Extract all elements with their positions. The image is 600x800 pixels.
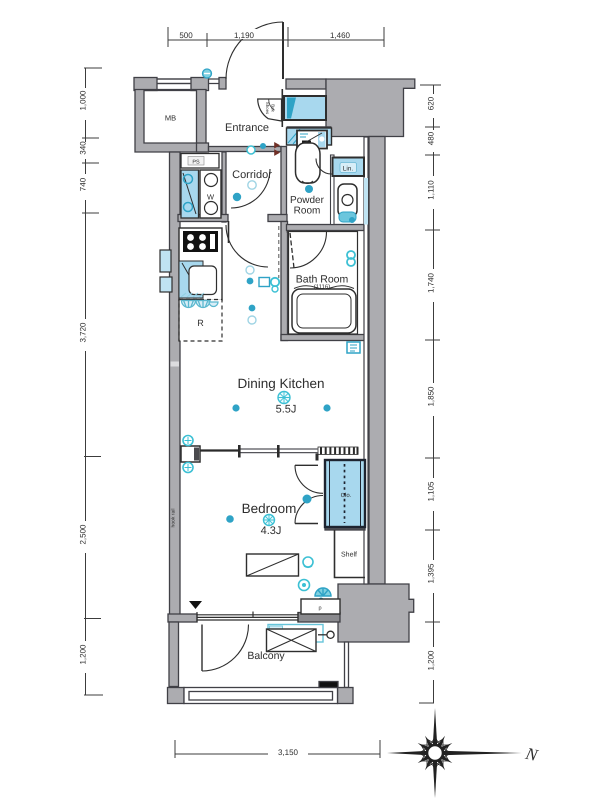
svg-text:Dining Kitchen: Dining Kitchen	[237, 376, 324, 391]
svg-text:Powder: Powder	[290, 195, 325, 206]
svg-text:Room: Room	[294, 206, 321, 217]
svg-text:1,200: 1,200	[79, 644, 88, 665]
svg-text:1,395: 1,395	[427, 563, 436, 584]
svg-text:5.5J: 5.5J	[276, 404, 297, 416]
svg-text:Bedroom: Bedroom	[242, 501, 297, 516]
svg-text:Shelf: Shelf	[341, 551, 357, 559]
svg-text:1,850: 1,850	[427, 386, 436, 407]
svg-text:500: 500	[179, 31, 193, 40]
svg-text:(1116): (1116)	[314, 284, 330, 291]
svg-text:740: 740	[79, 177, 88, 191]
svg-text:R: R	[197, 318, 204, 328]
svg-text:p: p	[318, 606, 321, 612]
svg-text:Balcony: Balcony	[247, 650, 285, 662]
svg-text:PS: PS	[192, 160, 200, 166]
svg-text:620: 620	[427, 96, 436, 110]
svg-text:340: 340	[79, 141, 88, 155]
svg-text:1,460: 1,460	[330, 31, 351, 40]
svg-text:3,150: 3,150	[278, 748, 299, 757]
svg-text:MB: MB	[165, 114, 176, 123]
svg-text:1,110: 1,110	[427, 180, 436, 200]
svg-text:W: W	[207, 193, 215, 202]
svg-text:1,190: 1,190	[234, 31, 255, 40]
svg-text:2,500: 2,500	[79, 524, 88, 545]
svg-text:1,200: 1,200	[427, 650, 436, 671]
svg-text:1,000: 1,000	[79, 90, 88, 111]
svg-text:3,720: 3,720	[79, 322, 88, 343]
svg-text:1,740: 1,740	[427, 272, 436, 293]
svg-text:Entrance: Entrance	[225, 122, 269, 134]
svg-text:hook rail: hook rail	[171, 509, 177, 528]
svg-text:4.3J: 4.3J	[261, 525, 282, 537]
svg-text:Clo.: Clo.	[341, 492, 352, 499]
svg-text:Corridor: Corridor	[232, 169, 272, 181]
svg-text:Box: Box	[271, 104, 276, 112]
svg-text:480: 480	[427, 131, 436, 145]
svg-text:Shoes: Shoes	[265, 102, 270, 115]
svg-text:Lin.: Lin.	[343, 166, 354, 173]
svg-text:1,105: 1,105	[427, 481, 436, 502]
